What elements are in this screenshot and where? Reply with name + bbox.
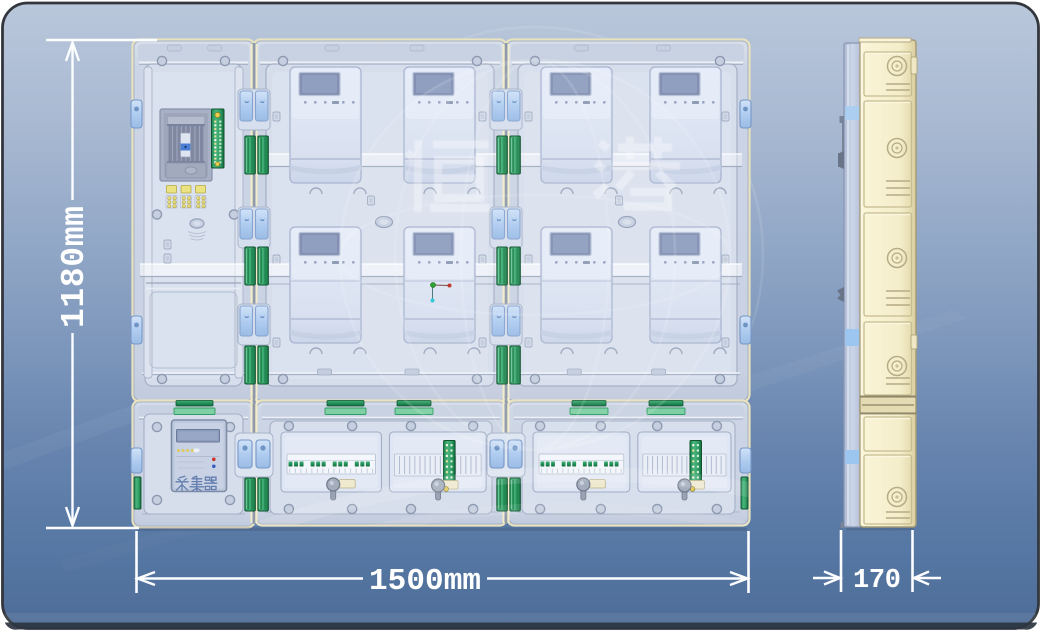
svg-text:170: 170 [853, 566, 901, 596]
svg-text:1180mm: 1180mm [56, 206, 93, 328]
svg-text:1500mm: 1500mm [369, 564, 481, 599]
